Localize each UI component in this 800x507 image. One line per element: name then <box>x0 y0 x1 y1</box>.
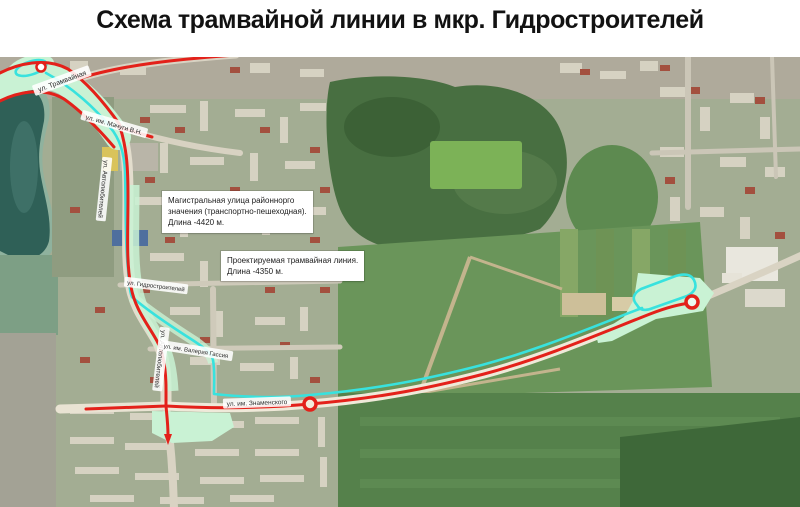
annotation-tram-line-line1: Проектируемая трамвайная линия. <box>227 255 358 266</box>
page-title: Схема трамвайной линии в мкр. Гидрострои… <box>0 6 800 35</box>
annotation-main-street-line2: значения (транспортно-пешеходная). <box>168 206 307 217</box>
annotation-main-street-line1: Магистральная улица районнорго <box>168 195 307 206</box>
infographic-page: Схема трамвайной линии в мкр. Гидрострои… <box>0 0 800 507</box>
annotation-main-street: Магистральная улица районнорго значения … <box>162 191 313 233</box>
annotation-main-street-line3: Длина -4420 м. <box>168 217 307 228</box>
satellite-map: ул. Трамвайная ул. им. Мачуги В.Н. ул. А… <box>0 57 800 507</box>
terminal-circle-northwest <box>37 63 46 72</box>
junction-circle-znamenskogo <box>304 398 316 410</box>
annotation-tram-line-line2: Длина -4350 м. <box>227 266 358 277</box>
terminal-circle-east <box>686 296 698 308</box>
annotation-tram-line: Проектируемая трамвайная линия. Длина -4… <box>221 251 364 281</box>
